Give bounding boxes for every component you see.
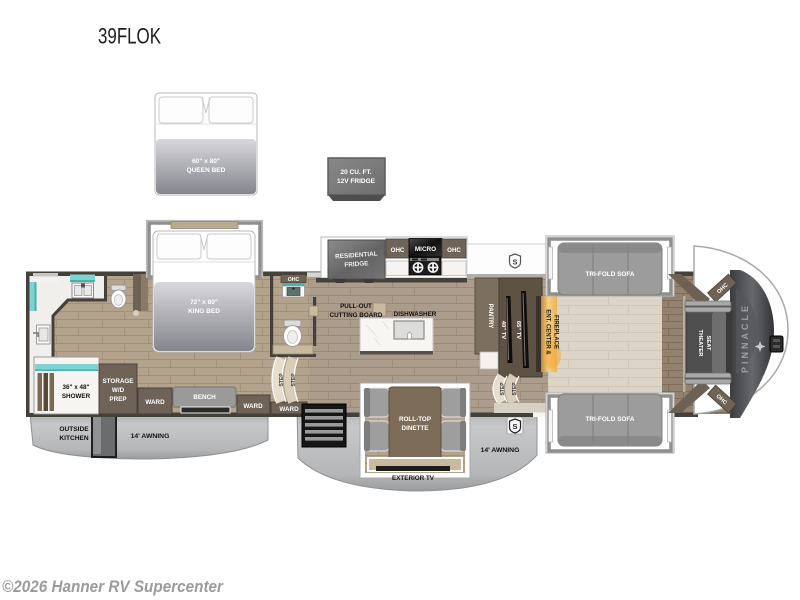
svg-text:TRI-FOLD SOFA: TRI-FOLD SOFA xyxy=(586,271,635,278)
svg-text:FIREPLACE: FIREPLACE xyxy=(553,315,559,349)
svg-text:39FLOK: 39FLOK xyxy=(98,24,161,49)
svg-text:KING BED: KING BED xyxy=(188,308,220,315)
svg-text:STEP: STEP xyxy=(279,373,285,387)
svg-text:36" x 48": 36" x 48" xyxy=(63,384,90,391)
svg-text:S: S xyxy=(512,258,517,267)
svg-text:CUTTING BOARD: CUTTING BOARD xyxy=(330,312,383,319)
svg-text:OHC: OHC xyxy=(288,277,300,283)
svg-text:KITCHEN: KITCHEN xyxy=(59,435,89,442)
svg-text:72" x 80": 72" x 80" xyxy=(190,299,218,306)
svg-text:PULL-OUT: PULL-OUT xyxy=(340,303,372,310)
svg-text:PANTRY: PANTRY xyxy=(487,304,494,330)
svg-text:QUEEN BED: QUEEN BED xyxy=(187,167,226,174)
svg-text:12V FRIDGE: 12V FRIDGE xyxy=(337,178,376,185)
svg-text:OUTSIDE: OUTSIDE xyxy=(59,426,89,433)
svg-text:S: S xyxy=(512,422,517,431)
svg-text:SHOWER: SHOWER xyxy=(62,393,91,400)
svg-text:THEATER: THEATER xyxy=(697,330,703,358)
svg-text:14' AWNING: 14' AWNING xyxy=(131,433,170,440)
svg-text:20 CU. FT.: 20 CU. FT. xyxy=(340,169,371,176)
svg-text:W/D: W/D xyxy=(112,387,125,394)
svg-text:STEP: STEP xyxy=(291,373,297,387)
svg-text:ROLL-TOP: ROLL-TOP xyxy=(399,416,431,423)
svg-text:STORAGE: STORAGE xyxy=(102,378,133,385)
svg-text:STEP: STEP xyxy=(512,382,518,396)
svg-text:40" TV: 40" TV xyxy=(500,321,506,339)
svg-text:STEP: STEP xyxy=(500,382,506,396)
svg-text:ENT. CENTER &: ENT. CENTER & xyxy=(545,309,551,355)
svg-text:PINNACLE: PINNACLE xyxy=(740,303,750,373)
svg-text:14' AWNING: 14' AWNING xyxy=(481,447,520,454)
svg-text:OHC: OHC xyxy=(391,247,405,254)
svg-text:DINETTE: DINETTE xyxy=(402,425,429,432)
svg-text:65" TV: 65" TV xyxy=(515,321,521,339)
svg-text:TRI-FOLD SOFA: TRI-FOLD SOFA xyxy=(586,416,635,423)
svg-text:©2026 Hanner RV Supercenter: ©2026 Hanner RV Supercenter xyxy=(2,577,224,596)
svg-text:PREP: PREP xyxy=(109,396,126,403)
svg-text:DISHWASHER: DISHWASHER xyxy=(394,311,437,318)
svg-text:BENCH: BENCH xyxy=(193,394,216,401)
svg-text:SEAT: SEAT xyxy=(705,335,711,350)
svg-text:WARD: WARD xyxy=(279,406,299,413)
svg-text:WARD: WARD xyxy=(243,403,263,410)
svg-text:60" x 80": 60" x 80" xyxy=(192,158,220,165)
svg-text:WARD: WARD xyxy=(145,399,165,406)
svg-text:MICRO: MICRO xyxy=(415,246,436,253)
svg-text:OHC: OHC xyxy=(447,247,461,254)
svg-text:EXTERIOR TV: EXTERIOR TV xyxy=(392,475,435,482)
